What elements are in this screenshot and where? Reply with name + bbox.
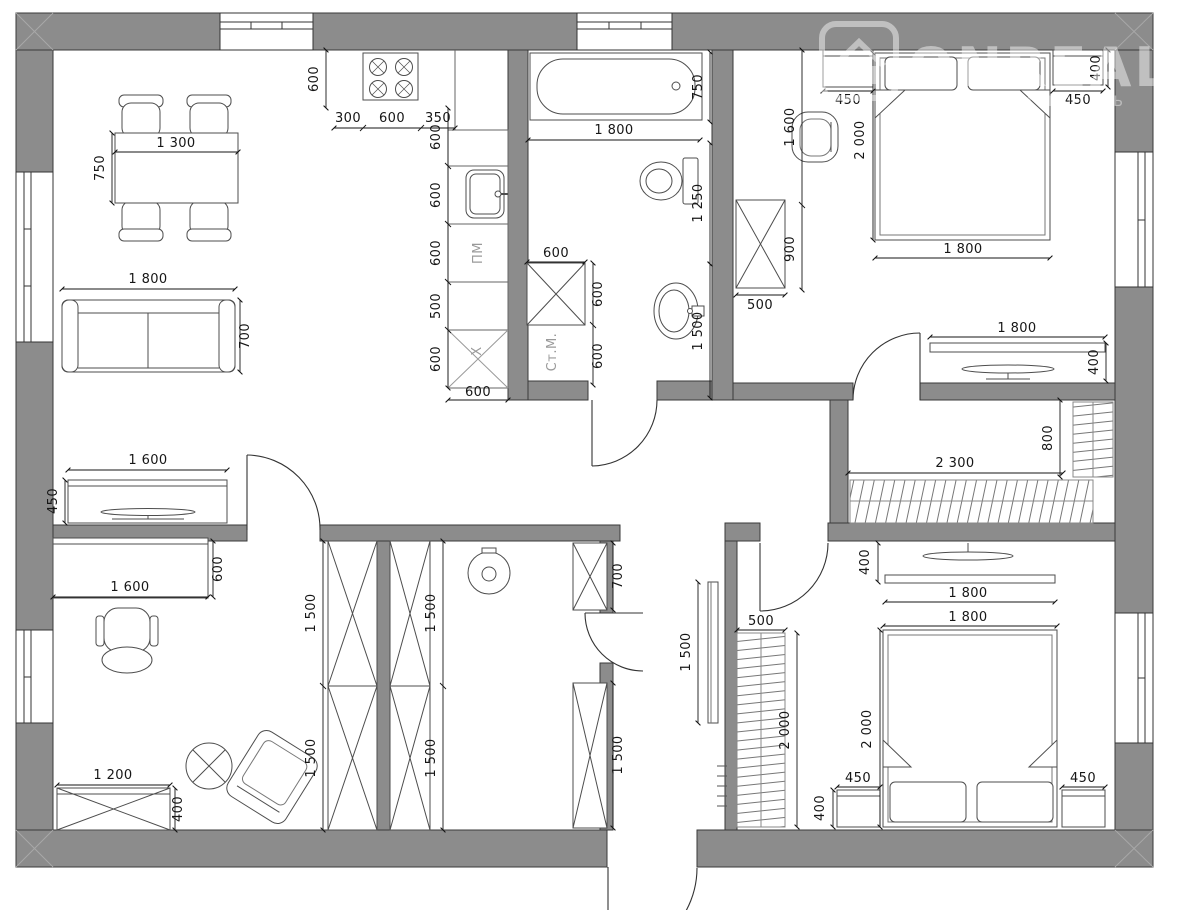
washer-cabinet bbox=[527, 263, 585, 325]
window-right-bedroom2 bbox=[1115, 613, 1153, 743]
bathtub bbox=[530, 53, 702, 120]
toilet bbox=[640, 158, 698, 204]
dim-label: 300 bbox=[335, 111, 361, 126]
floor-plan-page: 1 300 750 1 800 700 1 600 450 600 300 60… bbox=[0, 0, 1177, 910]
dim-label: 1 600 bbox=[128, 453, 167, 468]
dresser bbox=[57, 788, 170, 830]
nightstand-2-right bbox=[1062, 790, 1105, 827]
dim-label: 2 000 bbox=[853, 120, 868, 159]
dim-label: 600 bbox=[543, 246, 569, 261]
closet-rail-right bbox=[1073, 402, 1113, 477]
wardrobe-hall-bottom bbox=[573, 683, 607, 828]
dim-label: 450 bbox=[1070, 771, 1096, 786]
dim-label: 750 bbox=[93, 155, 108, 181]
dim-label: 400 bbox=[1087, 349, 1102, 375]
appliance-label: Х bbox=[470, 346, 485, 355]
dim-label: 1 800 bbox=[997, 321, 1036, 336]
wardrobe-hall-top bbox=[573, 543, 607, 610]
dim-label: 600 bbox=[429, 346, 444, 372]
window-top-bath bbox=[577, 13, 672, 50]
water-heater bbox=[468, 548, 510, 594]
dim-label: 450 bbox=[845, 771, 871, 786]
window-left-office bbox=[16, 630, 53, 723]
appliance-label: ПМ bbox=[471, 242, 486, 264]
dim-label: 1 600 bbox=[110, 580, 149, 595]
dim-label: 1 200 bbox=[93, 768, 132, 783]
tv-stand-living bbox=[68, 480, 227, 523]
side-table bbox=[186, 743, 232, 789]
office-chair bbox=[96, 608, 158, 673]
window-left-living bbox=[16, 172, 53, 342]
sofa bbox=[62, 300, 235, 372]
dim-label: 1 800 bbox=[943, 242, 982, 257]
door-bedroom2 bbox=[760, 543, 828, 611]
hall-mirror bbox=[708, 582, 718, 723]
door-bathroom bbox=[592, 400, 657, 466]
dim-label: 600 bbox=[211, 556, 226, 582]
kitchen-sink bbox=[466, 170, 508, 218]
dim-label: 600 bbox=[429, 240, 444, 266]
kitchen-counter bbox=[448, 50, 508, 388]
bed-2 bbox=[883, 630, 1057, 827]
wardrobe-column-1 bbox=[328, 541, 377, 830]
dim-label: 1 600 bbox=[783, 107, 798, 146]
dim-label: 1 800 bbox=[594, 123, 633, 138]
dim-label: 700 bbox=[238, 323, 253, 349]
dim-label: 1 500 bbox=[424, 593, 439, 632]
wardrobe-bedroom1 bbox=[736, 200, 785, 288]
dim-label: 700 bbox=[611, 563, 626, 589]
dim-label: 400 bbox=[858, 549, 873, 575]
dim-label: 1 500 bbox=[304, 738, 319, 777]
dim-label: 1 800 bbox=[128, 272, 167, 287]
floor-plan: 1 300 750 1 800 700 1 600 450 600 300 60… bbox=[0, 0, 1177, 910]
dim-label: 1 500 bbox=[679, 632, 694, 671]
dim-label: 1 500 bbox=[304, 593, 319, 632]
dim-label: 750 bbox=[691, 74, 706, 100]
dim-label: 600 bbox=[591, 343, 606, 369]
dim-label: 2 000 bbox=[860, 709, 875, 748]
dim-label: 400 bbox=[813, 795, 828, 821]
appliance-label: Ст.М. bbox=[545, 333, 560, 372]
dim-label: 2 300 bbox=[935, 456, 974, 471]
dim-label: 600 bbox=[429, 124, 444, 150]
dim-label: 2 000 bbox=[778, 710, 793, 749]
dim-label: 1 500 bbox=[424, 738, 439, 777]
door-boiler bbox=[585, 613, 643, 671]
dim-label: 500 bbox=[429, 293, 444, 319]
wardrobe-column-2 bbox=[390, 541, 430, 830]
dim-label: 900 bbox=[783, 236, 798, 262]
dim-label: 500 bbox=[747, 298, 773, 313]
dim-label: 1 800 bbox=[948, 610, 987, 625]
stove bbox=[363, 53, 418, 100]
window-right-bedroom1 bbox=[1115, 152, 1153, 287]
tv-stand-bedroom2 bbox=[885, 543, 1055, 583]
closet-rail-bottom bbox=[850, 480, 1093, 523]
dim-label: 600 bbox=[429, 182, 444, 208]
door-entrance bbox=[608, 867, 697, 910]
dim-label: 1 250 bbox=[691, 183, 706, 222]
nightstand-2-left bbox=[837, 790, 880, 827]
dim-label: 600 bbox=[379, 111, 405, 126]
dim-label: 1 800 bbox=[948, 586, 987, 601]
dim-label: 350 bbox=[425, 111, 451, 126]
dim-label: 500 bbox=[748, 614, 774, 629]
dim-label: 600 bbox=[591, 281, 606, 307]
dim-label: 600 bbox=[465, 385, 491, 400]
watermark-brand: ONREALT bbox=[908, 36, 1177, 99]
dim-label: 1 500 bbox=[611, 735, 626, 774]
window-top-left bbox=[220, 13, 313, 50]
dim-label: 1 500 bbox=[691, 311, 706, 350]
dim-label: 450 bbox=[46, 488, 61, 514]
dim-label: 400 bbox=[171, 796, 186, 822]
tv-stand-bedroom1 bbox=[930, 343, 1105, 379]
door-bedroom1 bbox=[853, 333, 920, 400]
dim-label: 1 300 bbox=[156, 136, 195, 151]
dim-label: 600 bbox=[307, 66, 322, 92]
door-living bbox=[247, 455, 320, 530]
armchair-bedroom1 bbox=[792, 112, 838, 162]
watermark-tagline: НЕДВИЖИМОСТЬ bbox=[908, 94, 1131, 110]
dim-label: 800 bbox=[1041, 425, 1056, 451]
